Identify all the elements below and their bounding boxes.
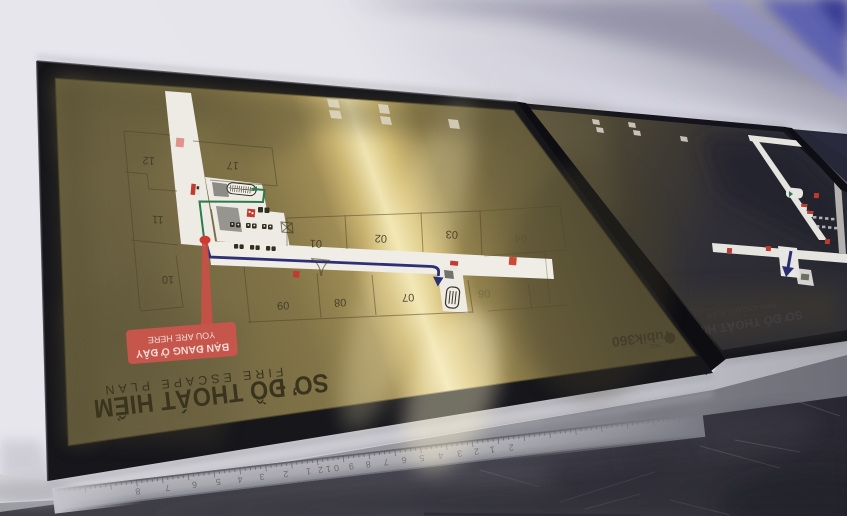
svg-text:10: 10	[162, 273, 174, 285]
svg-text:01: 01	[309, 237, 322, 250]
svg-text:17: 17	[226, 159, 239, 172]
svg-text:12: 12	[142, 154, 155, 167]
svg-text:09: 09	[277, 299, 290, 312]
svg-text:07: 07	[402, 291, 415, 304]
svg-text:04: 04	[514, 232, 527, 245]
svg-text:03: 03	[445, 228, 458, 241]
svg-text:08: 08	[334, 296, 347, 309]
svg-text:06: 06	[478, 287, 491, 300]
svg-text:11: 11	[152, 213, 164, 225]
svg-text:02: 02	[374, 232, 387, 245]
